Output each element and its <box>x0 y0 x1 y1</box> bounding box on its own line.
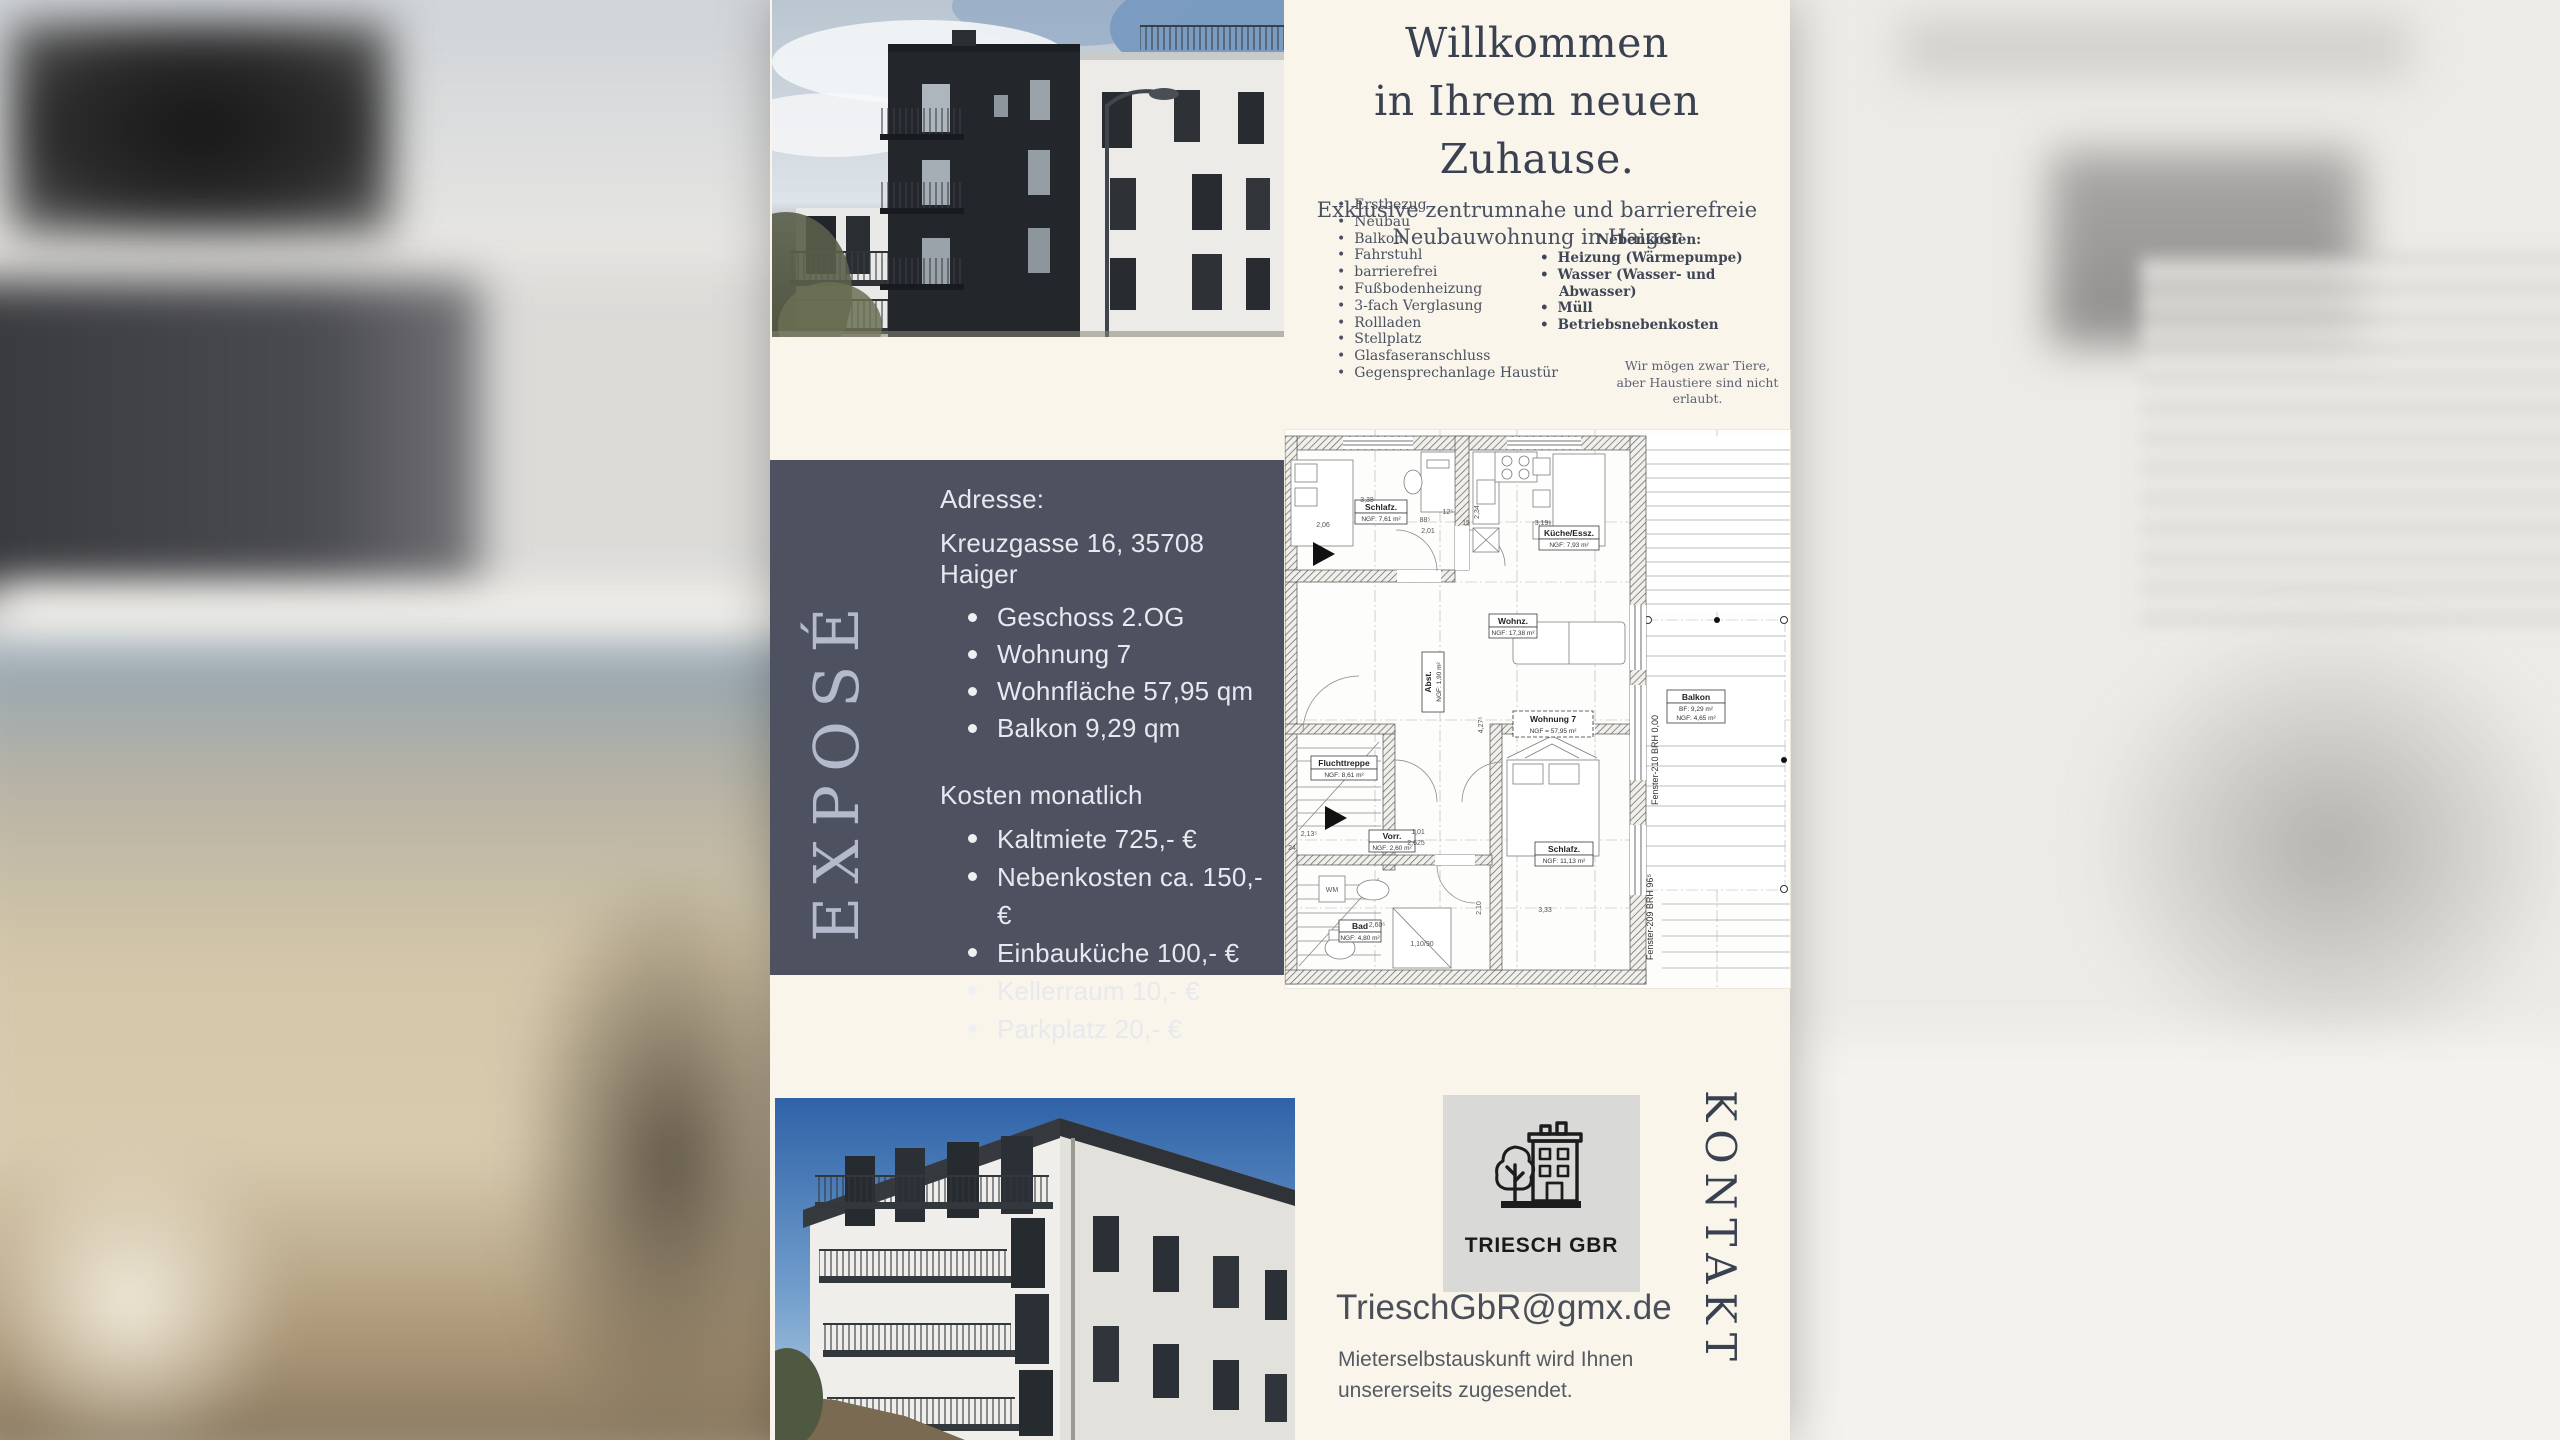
svg-text:2,625: 2,625 <box>1407 840 1425 847</box>
apartment-facts-list: Geschoss 2.OG Wohnung 7 Wohnfläche 57,95… <box>966 599 1275 747</box>
logo-text: TRIESCH GBR <box>1443 1234 1640 1258</box>
svg-text:Abst.: Abst. <box>1423 671 1433 692</box>
building-photo-bottom <box>775 1098 1295 1440</box>
window-tag: Fenster-210 BRH 0,00 <box>1650 715 1660 805</box>
cost-item: Kellerraum 10,- € <box>966 972 1275 1010</box>
svg-text:NGF: 8,61 m²: NGF: 8,61 m² <box>1324 772 1364 779</box>
svg-text:NGF: 17,38 m²: NGF: 17,38 m² <box>1492 630 1536 637</box>
contact-note: Mieterselbstauskunft wird Ihnen unserers… <box>1338 1344 1633 1406</box>
feature-item: Rollladen <box>1337 315 1558 332</box>
nebenkosten-list: Heizung (Wärmepumpe) Wasser (Wasser- und… <box>1540 250 1758 334</box>
svg-text:Fluchttreppe: Fluchttreppe <box>1318 758 1370 768</box>
svg-text:4,27⁵: 4,27⁵ <box>1478 717 1485 734</box>
svg-text:Bad: Bad <box>1352 921 1368 931</box>
contact-note-line1: Mieterselbstauskunft wird Ihnen <box>1338 1348 1633 1371</box>
svg-text:24: 24 <box>1288 845 1296 852</box>
svg-text:NGF: 7,93 m²: NGF: 7,93 m² <box>1549 542 1589 549</box>
svg-text:2,10: 2,10 <box>1476 901 1483 915</box>
svg-text:Wohnz.: Wohnz. <box>1498 616 1528 626</box>
svg-text:Küche/Essz.: Küche/Essz. <box>1544 528 1594 538</box>
contact-note-line2: unsererseits zugesendet. <box>1338 1379 1573 1402</box>
svg-text:2,34: 2,34 <box>1474 505 1481 519</box>
svg-text:2,01: 2,01 <box>1421 528 1435 535</box>
svg-text:NGF: 1,90 m²: NGF: 1,90 m² <box>1436 661 1443 701</box>
shower-size: 1,10/90 <box>1410 941 1433 948</box>
title-line1: Willkommen <box>1405 19 1669 67</box>
svg-text:Wohnung 7: Wohnung 7 <box>1530 714 1576 724</box>
cost-item: Nebenkosten ca. 150,- € <box>966 858 1275 934</box>
contact-email-link[interactable]: TrieschGbR@gmx.de <box>1336 1288 1672 1328</box>
svg-text:Vorr.: Vorr. <box>1383 831 1402 841</box>
svg-text:Balkon: Balkon <box>1682 692 1710 702</box>
svg-text:3,33: 3,33 <box>1538 907 1552 914</box>
feature-item: Balkon <box>1337 231 1558 248</box>
blurred-background-left <box>0 0 770 1440</box>
window-tag: Fenster-209 BRH 96⁵ <box>1645 874 1655 961</box>
feature-item: Stellplatz <box>1337 331 1558 348</box>
cost-item: Kaltmiete 725,- € <box>966 820 1275 858</box>
svg-text:3,19⁵: 3,19⁵ <box>1535 520 1552 527</box>
nebenkosten-item: Heizung (Wärmepumpe) <box>1540 250 1758 267</box>
balcony-center <box>880 108 964 290</box>
feature-item: Glasfaseranschluss <box>1337 348 1558 365</box>
nebenkosten-item: Betriebsnebenkosten <box>1540 317 1758 334</box>
feature-item: 3-fach Verglasung <box>1337 298 1558 315</box>
svg-text:88⁵: 88⁵ <box>1420 517 1431 524</box>
building-logo-icon <box>1487 1121 1597 1217</box>
address-label: Adresse: <box>940 484 1275 515</box>
svg-text:2,13⁵: 2,13⁵ <box>1301 831 1318 838</box>
feature-item: Neubau <box>1337 214 1558 231</box>
apartment-fact: Balkon 9,29 qm <box>966 710 1275 747</box>
svg-text:2,60⁵: 2,60⁵ <box>1369 922 1386 929</box>
svg-text:2,06: 2,06 <box>1316 522 1330 529</box>
section-arrow <box>1325 806 1347 830</box>
page-title: Willkommen in Ihrem neuen Zuhause. <box>1284 14 1790 189</box>
expose-box: EXPOSÉ Adresse: Kreuzgasse 16, 35708 Hai… <box>770 460 1284 975</box>
feature-item: barrierefrei <box>1337 264 1558 281</box>
nebenkosten-heading: Nebenkosten: <box>1540 232 1758 248</box>
svg-text:NGF: 4,65 m²: NGF: 4,65 m² <box>1676 715 1716 722</box>
building-photo-top <box>772 0 1284 337</box>
cost-item: Einbauküche 100,- € <box>966 934 1275 972</box>
nebenkosten-item: Müll <box>1540 300 1758 317</box>
expose-vertical-label: EXPOSÉ <box>800 502 873 942</box>
feature-list: Erstbezug Neubau Balkon Fahrstuhl barrie… <box>1337 197 1558 382</box>
svg-text:NGF: 11,13 m²: NGF: 11,13 m² <box>1543 858 1586 865</box>
apartment-fact: Geschoss 2.OG <box>966 599 1275 636</box>
address-value: Kreuzgasse 16, 35708 Haiger <box>940 528 1275 590</box>
svg-text:NGF: 7,61 m²: NGF: 7,61 m² <box>1361 516 1401 523</box>
building-photo-bottom-graphic <box>775 1098 1295 1440</box>
apartment-fact: Wohnung 7 <box>966 636 1275 673</box>
expose-flyer-page: Willkommen in Ihrem neuen Zuhause. Exklu… <box>770 0 1790 1440</box>
expose-content: Adresse: Kreuzgasse 16, 35708 Haiger Ges… <box>940 480 1275 1048</box>
feature-item: Gegensprechanlage Haustür <box>1337 365 1558 382</box>
svg-text:NGF = 57,95 m²: NGF = 57,95 m² <box>1530 728 1578 735</box>
feature-item: Fahrstuhl <box>1337 247 1558 264</box>
svg-text:3,38: 3,38 <box>1360 497 1374 504</box>
pets-note-line1: Wir mögen zwar Tiere, <box>1625 358 1770 373</box>
svg-text:12⁵: 12⁵ <box>1443 509 1454 516</box>
hero-section: Willkommen in Ihrem neuen Zuhause. Exklu… <box>1284 0 1790 420</box>
company-logo-box: TRIESCH GBR <box>1443 1095 1640 1292</box>
svg-text:15: 15 <box>1462 520 1470 527</box>
costs-list: Kaltmiete 725,- € Nebenkosten ca. 150,- … <box>966 820 1275 1048</box>
blurred-background-right <box>1790 0 2560 1440</box>
apartment-fact: Wohnfläche 57,95 qm <box>966 673 1275 710</box>
feature-item: Fußbodenheizung <box>1337 281 1558 298</box>
title-line2: in Ihrem neuen Zuhause. <box>1374 77 1700 183</box>
floor-plan: Schlafz. NGF: 7,61 m² Küche/Essz. NGF: 7… <box>1285 430 1790 988</box>
feature-item: Erstbezug <box>1337 197 1558 214</box>
costs-heading: Kosten monatlich <box>940 780 1275 811</box>
pets-note-line2: aber Haustiere sind nicht erlaubt. <box>1617 375 1779 407</box>
pets-note: Wir mögen zwar Tiere, aber Haustiere sin… <box>1590 358 1805 408</box>
cost-item: Parkplatz 20,- € <box>966 1010 1275 1048</box>
svg-text:NGF: 4,80 m²: NGF: 4,80 m² <box>1340 935 1380 942</box>
nebenkosten-block: Nebenkosten: Heizung (Wärmepumpe) Wasser… <box>1540 232 1758 334</box>
svg-text:Schlafz.: Schlafz. <box>1548 844 1580 854</box>
building-photo-top-graphic <box>772 0 1284 337</box>
wm-label: WM <box>1326 887 1339 894</box>
kontakt-vertical-label: KONTAKT <box>1696 1090 1745 1380</box>
svg-text:BF: 9,29 m²: BF: 9,29 m² <box>1679 706 1714 713</box>
svg-text:1,01: 1,01 <box>1411 829 1425 836</box>
floor-plan-drawing: Schlafz. NGF: 7,61 m² Küche/Essz. NGF: 7… <box>1285 430 1790 988</box>
nebenkosten-item: Wasser (Wasser- und Abwasser) <box>1540 267 1758 301</box>
